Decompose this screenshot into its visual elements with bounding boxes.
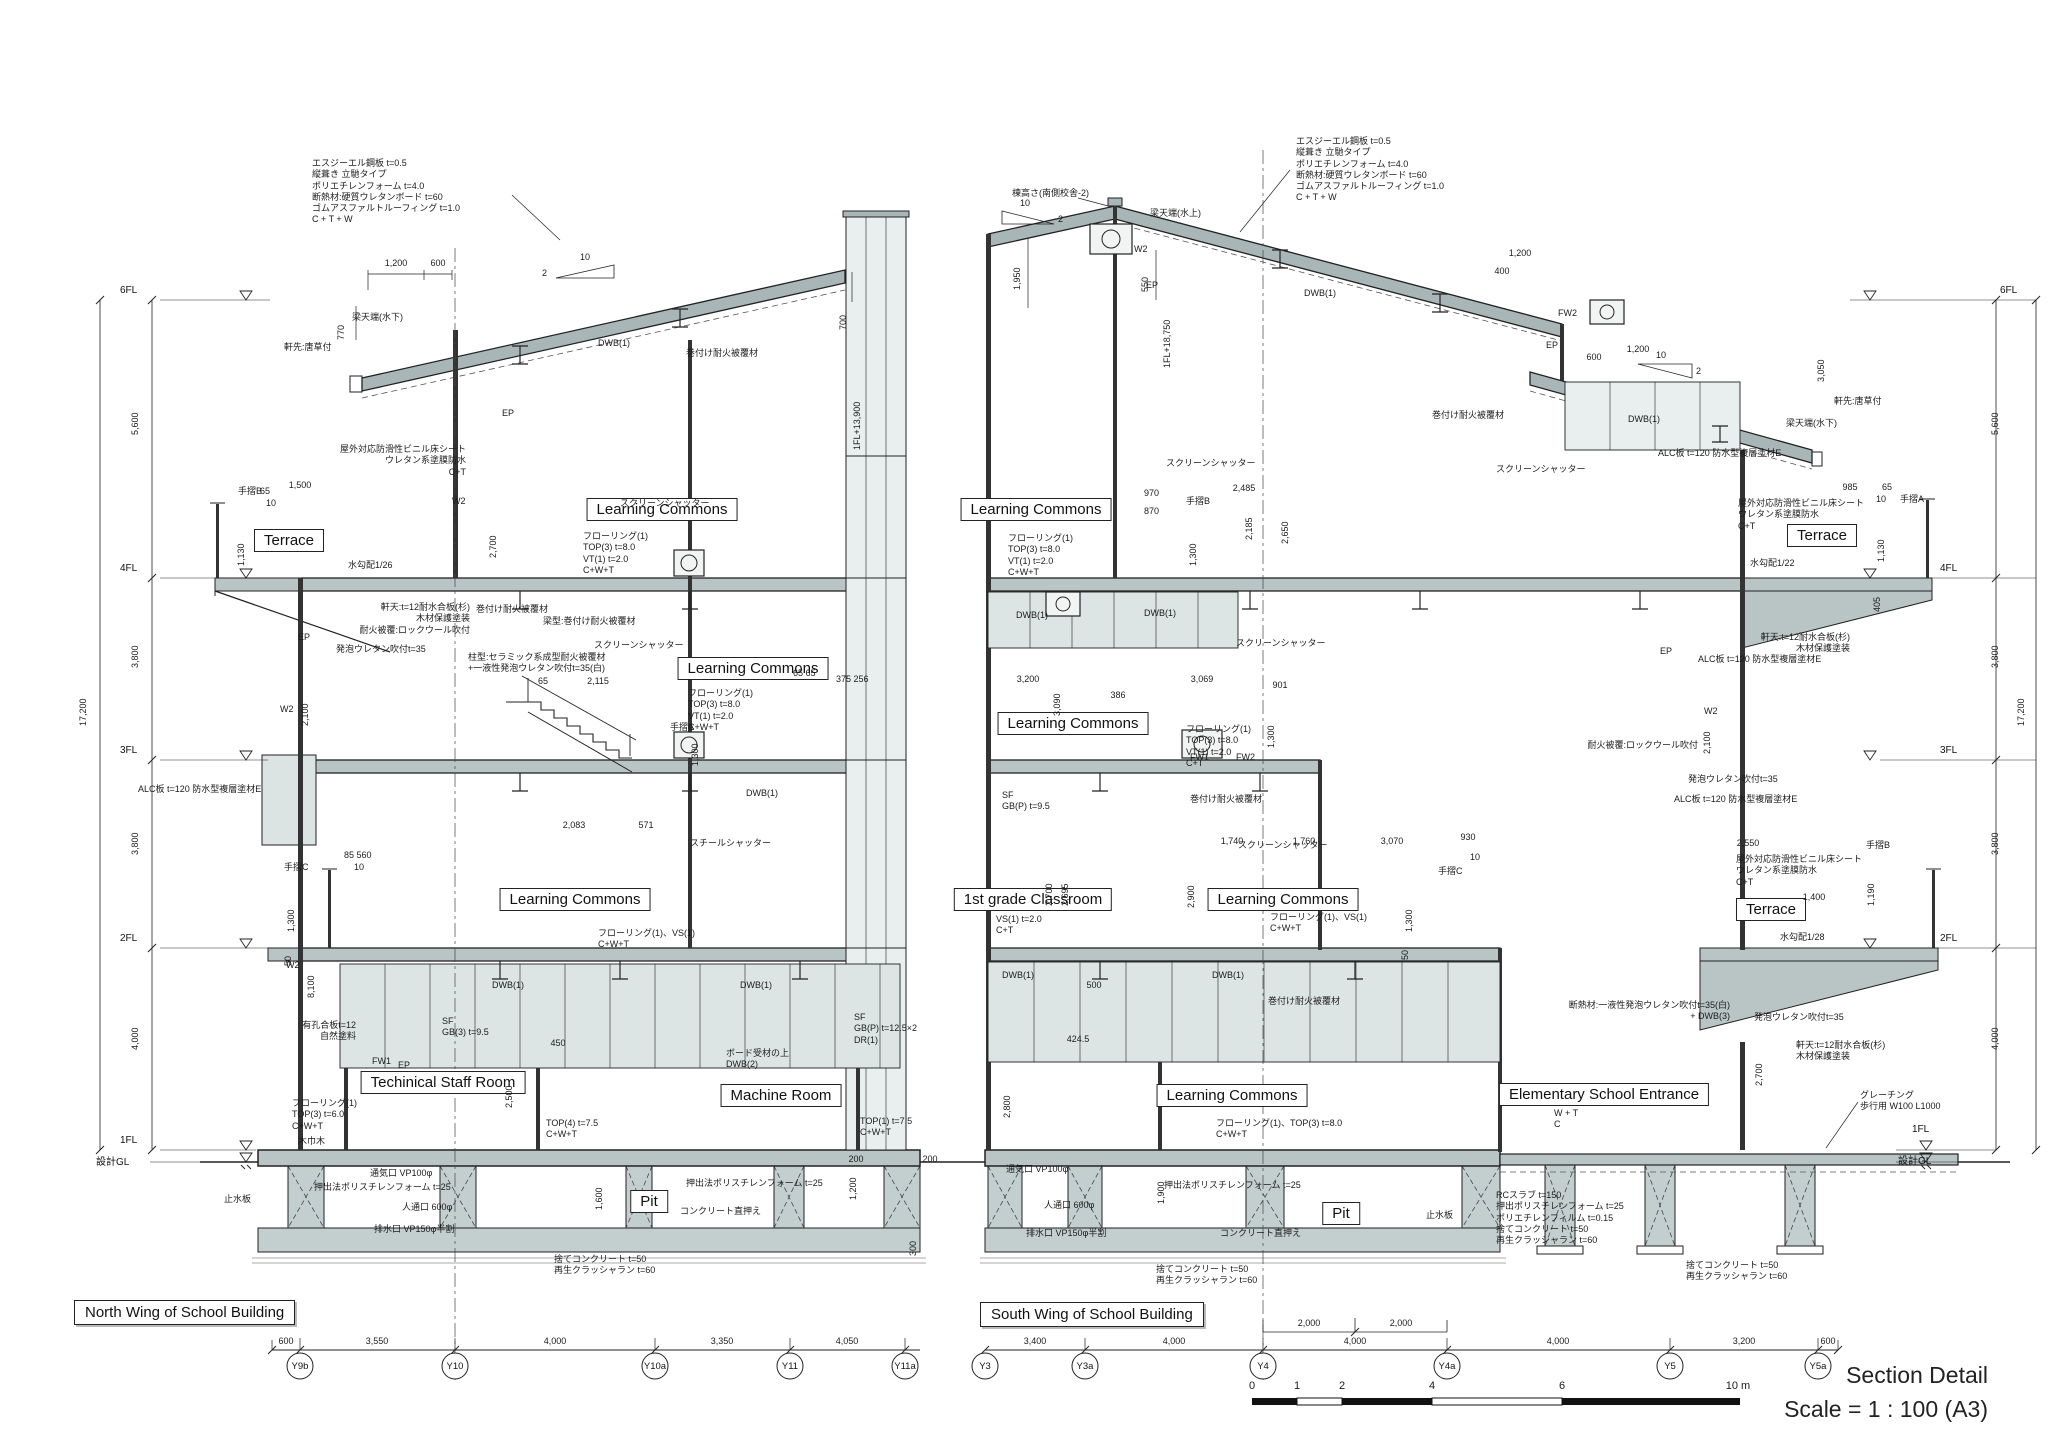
note: 2,900 xyxy=(1186,885,1196,908)
note: ALC板 t=120 防水型複層塗材E xyxy=(138,784,261,795)
note: 300 xyxy=(908,1241,918,1256)
note: DWB(1) xyxy=(1002,970,1034,981)
note: 軒天:t=12耐水合板(杉) 木材保護塗装 耐火被覆:ロックウール吹付 xyxy=(250,602,470,636)
note: 1,950 xyxy=(1012,267,1022,290)
note: 軒先:唐草付 xyxy=(1834,396,1882,407)
note: 1,130 xyxy=(1876,539,1886,562)
note: 有孔合板t=12 自然塗料 xyxy=(286,1020,356,1043)
note: 2,650 xyxy=(1280,521,1290,544)
note: 止水板 xyxy=(1426,1210,1453,1221)
vdim: 3,800 xyxy=(130,832,140,855)
grid-dim: 3,400 xyxy=(1024,1336,1047,1346)
note: 屋外対応防滑性ビニル床シート ウレタン系塗膜防水 C+T xyxy=(318,444,466,478)
note: W2 xyxy=(280,704,294,715)
note: DWB(1) xyxy=(1212,970,1244,981)
room-label-lc3-south: Learning Commons xyxy=(998,712,1149,735)
note: 1,190 xyxy=(1866,883,1876,906)
note: 棟高さ(南側校舎-2) xyxy=(1012,188,1089,199)
grid-bubble: Y10a xyxy=(638,1361,672,1372)
note: 捨てコンクリート t=50 再生クラッシャラン t=60 xyxy=(1156,1264,1257,1287)
note: 止水板 xyxy=(224,1194,251,1205)
room-label-terrace2: Terrace xyxy=(1736,898,1806,921)
level-2fl: 2FL xyxy=(120,933,137,944)
note: 2,700 xyxy=(1044,883,1054,906)
grid-bubble: Y3a xyxy=(1068,1361,1102,1372)
note: ALC板 t=120 防水型複層塗材E xyxy=(1698,654,1821,665)
grid-dim: 4,000 xyxy=(1344,1336,1367,1346)
grid-bubble: Y11a xyxy=(888,1361,922,1372)
note: 手摺C xyxy=(1438,866,1463,877)
note: SF GB(3) t=9.5 xyxy=(442,1016,489,1039)
scalebar-tick: 2 xyxy=(1339,1380,1345,1392)
note: W2 xyxy=(1704,706,1718,717)
level-3fl: 3FL xyxy=(120,745,137,756)
slope-run: 10 xyxy=(1020,198,1030,209)
slope-rise: 2 xyxy=(1058,214,1063,225)
note: 600 xyxy=(1586,352,1601,362)
note: 1,300 xyxy=(1188,543,1198,566)
note: DWB(1) xyxy=(1144,608,1176,619)
note: 押出法ポリスチレンフォーム t=25 xyxy=(314,1182,451,1193)
note: 1,760 xyxy=(1293,836,1316,846)
grid-dim: 4,000 xyxy=(544,1336,567,1346)
note: 1,400 xyxy=(1803,892,1826,902)
note: 600 xyxy=(430,258,445,268)
note: 水勾配1/28 xyxy=(1780,932,1825,943)
note: 65 xyxy=(1882,482,1892,493)
room-label-pit-south: Pit xyxy=(1322,1202,1360,1225)
note: EP xyxy=(1146,280,1158,291)
note: 手摺B xyxy=(238,486,262,497)
room-label-lc4-south: Learning Commons xyxy=(961,498,1112,521)
grid-bubble: Y4 xyxy=(1246,1361,1280,1372)
room-label-1st-grade: 1st grade Classroom xyxy=(954,888,1112,911)
note: 1,500 xyxy=(289,480,312,490)
grid-dim: 4,000 xyxy=(1163,1336,1186,1346)
level-4fl: 4FL xyxy=(120,563,137,574)
note: コンクリート直押え xyxy=(680,1206,761,1217)
note: 捨てコンクリート t=50 再生クラッシャラン t=60 xyxy=(554,1254,655,1277)
note: W2 xyxy=(286,960,300,971)
sheet-scale: Scale = 1 : 100 (A3) xyxy=(1784,1396,1988,1423)
note: フローリング(1)、VS(1) C+W+T xyxy=(1270,912,1367,935)
note: EP xyxy=(1546,340,1558,351)
note: 通気口 VP100φ xyxy=(1006,1164,1068,1175)
note: 水勾配1/22 xyxy=(1750,558,1795,569)
level-6fl-r: 6FL xyxy=(2000,285,2017,296)
note: 2,100 xyxy=(300,703,310,726)
note: 50 xyxy=(1400,950,1410,960)
note: DWB(1) xyxy=(598,338,630,349)
note: 木巾木 xyxy=(298,1136,325,1147)
note: 巻付け耐火被覆材 xyxy=(1190,794,1262,805)
note: 人通口 600φ xyxy=(402,1202,452,1213)
slope-run: 10 xyxy=(1656,350,1666,361)
note: W2 xyxy=(452,496,466,507)
grid-dim: 2,000 xyxy=(1390,1318,1413,1328)
note: 手摺A xyxy=(1900,494,1924,505)
note: 2,485 xyxy=(1233,483,1256,493)
note: DWB(1) xyxy=(1016,610,1048,621)
note: 450 xyxy=(550,1038,565,1048)
note: DWB(1) xyxy=(740,980,772,991)
note: FW2 xyxy=(1236,752,1255,763)
note: 1,200 xyxy=(385,258,408,268)
note: 10 xyxy=(1876,494,1886,505)
note: フローリング(1) TOP(3) t=8.0 VT(1) t=2.0 C+W+T xyxy=(688,688,753,733)
grid-dim: 3,200 xyxy=(1733,1336,1756,1346)
grid-dim: 3,550 xyxy=(366,1336,389,1346)
note: 930 xyxy=(1460,832,1475,842)
note: 手摺C xyxy=(284,862,309,873)
note: 2,500 xyxy=(504,1085,514,1108)
note: 200 xyxy=(848,1154,863,1164)
vdim: 4,000 xyxy=(1990,1027,2000,1050)
note: DWB(1) xyxy=(1304,288,1336,299)
note: フローリング(1)、VS(1) C+W+T xyxy=(598,928,695,951)
note: 屋外対応防滑性ビニル床シート ウレタン系塗膜防水 C+T xyxy=(1736,854,1862,888)
scalebar-tick: 0 xyxy=(1249,1380,1255,1392)
note: フローリング(1)、TOP(3) t=8.0 C+W+T xyxy=(1216,1118,1342,1141)
note: 2,100 xyxy=(1702,731,1712,754)
scalebar-tick: 1 xyxy=(1294,1380,1300,1392)
note: 2,700 xyxy=(1754,1063,1764,1086)
note: 405 xyxy=(1872,597,1882,612)
vdim: 5,600 xyxy=(130,412,140,435)
note: FW1 xyxy=(372,1056,391,1067)
note: 1,900 xyxy=(1156,1181,1166,1204)
note: SF GB(P) t=12.5×2 DR(1) xyxy=(854,1012,917,1046)
note: 65 65 xyxy=(793,668,816,679)
note: RCスラブ t=150 押出ポリスチレンフォーム t=25 ポリエチレンフィルム… xyxy=(1496,1190,1624,1246)
level-1fl: 1FL xyxy=(120,1135,137,1146)
note: フローリング(1) TOP(3) t=8.0 VT(1) t=2.0 C+W+T xyxy=(583,531,648,576)
note: 押出法ポリスチレンフォーム t=25 xyxy=(686,1178,823,1189)
note: 1,130 xyxy=(236,543,246,566)
grid-bubble: Y3 xyxy=(968,1361,1002,1372)
note: VS(1) t=2.0 C+T xyxy=(996,914,1042,937)
grid-bubble: Y4a xyxy=(1430,1361,1464,1372)
note: スクリーンシャッター xyxy=(1496,464,1586,475)
note: DWB(1) xyxy=(492,980,524,991)
room-label-lc2-south: Learning Commons xyxy=(1208,888,1359,911)
note: 386 xyxy=(1110,690,1125,700)
note: 571 xyxy=(638,820,653,830)
note: ALC板 t=120 防水型複層塗材E xyxy=(1658,448,1781,459)
note: 85 560 xyxy=(344,850,372,861)
note: 65 xyxy=(260,486,270,497)
level-3fl-r: 3FL xyxy=(1940,745,1957,756)
note: EP xyxy=(398,1060,410,1071)
note: W2 xyxy=(1134,244,1148,255)
slope-rise: 2 xyxy=(542,268,547,279)
level-4fl-r: 4FL xyxy=(1940,563,1957,574)
note: 排水口 VP150φ半割 xyxy=(374,1224,454,1235)
note: W + T C xyxy=(1554,1108,1578,1131)
note: DWB(1) xyxy=(746,788,778,799)
note: 巻付け耐火被覆材 xyxy=(686,348,758,359)
grid-dim: 600 xyxy=(278,1336,293,1346)
note: 通気口 VP100φ xyxy=(370,1168,432,1179)
note: 巻付け耐火被覆材 xyxy=(476,604,548,615)
note: 200 xyxy=(922,1154,937,1164)
note: スクリーンシャッター xyxy=(620,498,710,509)
slope-rise: 2 xyxy=(1696,366,1701,377)
note: 65 xyxy=(538,676,548,687)
note: フローリング(1) TOP(3) t=6.0 C+W+T xyxy=(292,1098,357,1132)
note-roof-spec-s: エスジーエル鋼板 t=0.5 縦葺き 立馳タイプ ポリエチレンフォーム t=4.… xyxy=(1296,136,1444,204)
note: 発泡ウレタン吹付t=35 xyxy=(1754,1012,1844,1023)
south-wing-label: South Wing of School Building xyxy=(980,1302,1204,1327)
note: 870 xyxy=(1144,506,1159,517)
note: 排水口 VP150φ半割 xyxy=(1026,1228,1106,1239)
note: ボード受材の上 DWB(2) xyxy=(726,1048,789,1071)
north-wing-label: North Wing of School Building xyxy=(74,1300,295,1325)
note: 400 xyxy=(1494,266,1509,276)
vdim: 3,800 xyxy=(1990,832,2000,855)
note: 1FL+18,750 xyxy=(1162,320,1172,368)
vdim: 5,600 xyxy=(1990,412,2000,435)
note: 1FL+13,900 xyxy=(852,402,862,450)
note: 2,800 xyxy=(1002,1095,1012,1118)
grid-bubble: Y9b xyxy=(283,1361,317,1372)
room-label-entrance: Elementary School Entrance xyxy=(1499,1083,1709,1106)
note: 8,100 xyxy=(306,975,316,998)
note: DWB(1) xyxy=(1628,414,1660,425)
note: 3,069 xyxy=(1191,674,1214,684)
note: 3,090 xyxy=(1052,693,1062,716)
grid-dim: 600 xyxy=(1820,1336,1835,1346)
note: 1,300 xyxy=(1266,725,1276,748)
note: 軒天:t=12耐水合板(杉) 木材保護塗装 xyxy=(1796,1040,1885,1063)
grid-dim: 3,350 xyxy=(711,1336,734,1346)
room-label-terrace-north: Terrace xyxy=(254,529,324,552)
note: 断熱材:一液性発泡ウレタン吹付t=35(白) + DWB(3) xyxy=(1530,1000,1730,1023)
grid-bubble: Y5a xyxy=(1801,1361,1835,1372)
note: コンクリート直押え xyxy=(1220,1228,1301,1239)
note: 985 xyxy=(1842,482,1857,492)
note: FW2 xyxy=(1558,308,1577,319)
note: 500 xyxy=(1086,980,1101,990)
vdim-total: 17,200 xyxy=(2016,698,2026,726)
note: 1,600 xyxy=(594,1187,604,1210)
note: 2,550 xyxy=(1737,838,1760,848)
room-label-pit-north: Pit xyxy=(630,1190,668,1213)
note: 梁天端(水下) xyxy=(352,312,403,323)
note: 375 256 xyxy=(836,674,869,685)
note: スチールシャッター xyxy=(690,838,771,849)
note: 1,300 xyxy=(690,743,700,766)
note: 10 xyxy=(1470,852,1480,863)
note: 2,700 xyxy=(488,535,498,558)
room-label-lc1-south: Learning Commons xyxy=(1157,1084,1308,1107)
room-label-machine: Machine Room xyxy=(721,1084,842,1107)
note: 424.5 xyxy=(1067,1034,1090,1044)
vdim: 3,800 xyxy=(130,645,140,668)
room-label-lc2-north: Learning Commons xyxy=(500,888,651,911)
note: 発泡ウレタン吹付t=35 xyxy=(1688,774,1778,785)
note: 1,200 xyxy=(848,1177,858,1200)
level-2fl-r: 2FL xyxy=(1940,933,1957,944)
note-roof-spec-n: エスジーエル鋼板 t=0.5 縦葺き 立馳タイプ ポリエチレンフォーム t=4.… xyxy=(312,158,460,226)
note: フローリング(1) TOP(3) t=8.0 VT(1) t=2.0 C+W+T xyxy=(1008,533,1073,578)
note: 巻付け耐火被覆材 xyxy=(1268,996,1340,1007)
note: 梁天端(水下) xyxy=(1786,418,1837,429)
note: EP xyxy=(298,632,310,643)
level-1fl-r: 1FL xyxy=(1912,1124,1929,1135)
note: 2,185 xyxy=(1244,517,1254,540)
section-detail-sheet: Section Detail Scale = 1 : 100 (A3) Nort… xyxy=(0,0,2048,1448)
note: 手摺B xyxy=(1866,840,1890,851)
grid-bubble: Y10 xyxy=(438,1361,472,1372)
note: ALC板 t=120 防水型複層塗材E xyxy=(1674,794,1797,805)
note: 手摺A xyxy=(670,722,694,733)
note: 3,050 xyxy=(1816,359,1826,382)
grid-dim: 4,050 xyxy=(836,1336,859,1346)
note: 3,200 xyxy=(1017,674,1040,684)
grid-dim: 2,000 xyxy=(1298,1318,1321,1328)
slope-run: 10 xyxy=(580,252,590,263)
room-label-staff: Techinical Staff Room xyxy=(361,1071,526,1094)
grid-bubble: Y11 xyxy=(773,1361,807,1372)
note: 10 xyxy=(266,498,276,509)
scalebar-tick: 6 xyxy=(1559,1380,1565,1392)
note: 梁天端(水上) xyxy=(1150,208,1201,219)
note: 1,300 xyxy=(1404,909,1414,932)
note: 押出法ポリスチレンフォーム t=25 xyxy=(1164,1180,1301,1191)
note: 巻付け耐火被覆材 xyxy=(1432,410,1504,421)
level-gl: 設計GL xyxy=(96,1153,129,1168)
note: 屋外対応防滑性ビニル床シート ウレタン系塗膜防水 C+T xyxy=(1738,498,1864,532)
note: 梁型:巻付け耐火被覆材 xyxy=(543,616,636,627)
note: EP xyxy=(1660,646,1672,657)
note: 柱型:セラミック系成型耐火被覆材 +一液性発泡ウレタン吹付t=35(白) xyxy=(468,652,606,675)
scalebar-tick: 4 xyxy=(1429,1380,1435,1392)
note: 2,083 xyxy=(563,820,586,830)
note: 2,115 xyxy=(587,676,609,686)
grid-bubble: Y5 xyxy=(1653,1361,1687,1372)
note: 1,300 xyxy=(286,909,296,932)
vdim: 4,000 xyxy=(130,1027,140,1050)
note: 970 xyxy=(1144,488,1159,499)
note: 手摺B xyxy=(1186,496,1210,507)
grid-dim: 4,000 xyxy=(1547,1336,1570,1346)
note: 901 xyxy=(1272,680,1287,690)
note: 770 xyxy=(336,325,346,340)
note: 1,200 xyxy=(1509,248,1532,258)
note: スクリーンシャッター xyxy=(1166,458,1256,469)
note: 3,070 xyxy=(1381,836,1404,846)
note: 発泡ウレタン吹付t=35 xyxy=(336,644,426,655)
vdim: 3,800 xyxy=(1990,645,2000,668)
note: FW1 xyxy=(1190,752,1209,763)
note: スクリーンシャッター xyxy=(1236,638,1326,649)
level-gl-r: 設計GL xyxy=(1898,1152,1931,1167)
note: 1,200 xyxy=(1627,344,1650,354)
vdim-total: 17,200 xyxy=(78,698,88,726)
level-6fl: 6FL xyxy=(120,285,137,296)
note: SF GB(P) t=9.5 xyxy=(1002,790,1050,813)
note: 人通口 600φ xyxy=(1044,1200,1094,1211)
note: 耐火被覆:ロックウール吹付 xyxy=(1548,740,1698,751)
note: 10 xyxy=(354,862,364,873)
note: スクリーンシャッター xyxy=(594,640,684,651)
note: グレーチング 歩行用 W100 L1000 xyxy=(1860,1090,1941,1113)
note: TOP(1) t=7.5 C+W+T xyxy=(860,1116,912,1139)
note: 軒先:唐草付 xyxy=(284,342,332,353)
note: 捨てコンクリート t=50 再生クラッシャラン t=60 xyxy=(1686,1260,1787,1283)
note: 水勾配1/26 xyxy=(348,560,393,571)
note: 軒天:t=12耐水合板(杉) 木材保護塗装 xyxy=(1700,632,1850,655)
note: 700 xyxy=(838,315,848,330)
note: EP xyxy=(502,408,514,419)
note: TOP(4) t=7.5 C+W+T xyxy=(546,1118,598,1141)
scalebar-tick: 10 m xyxy=(1726,1380,1750,1392)
note: 1,740 xyxy=(1221,836,1244,846)
note: 2,695 xyxy=(1060,883,1070,906)
sheet-title: Section Detail xyxy=(1846,1362,1988,1389)
